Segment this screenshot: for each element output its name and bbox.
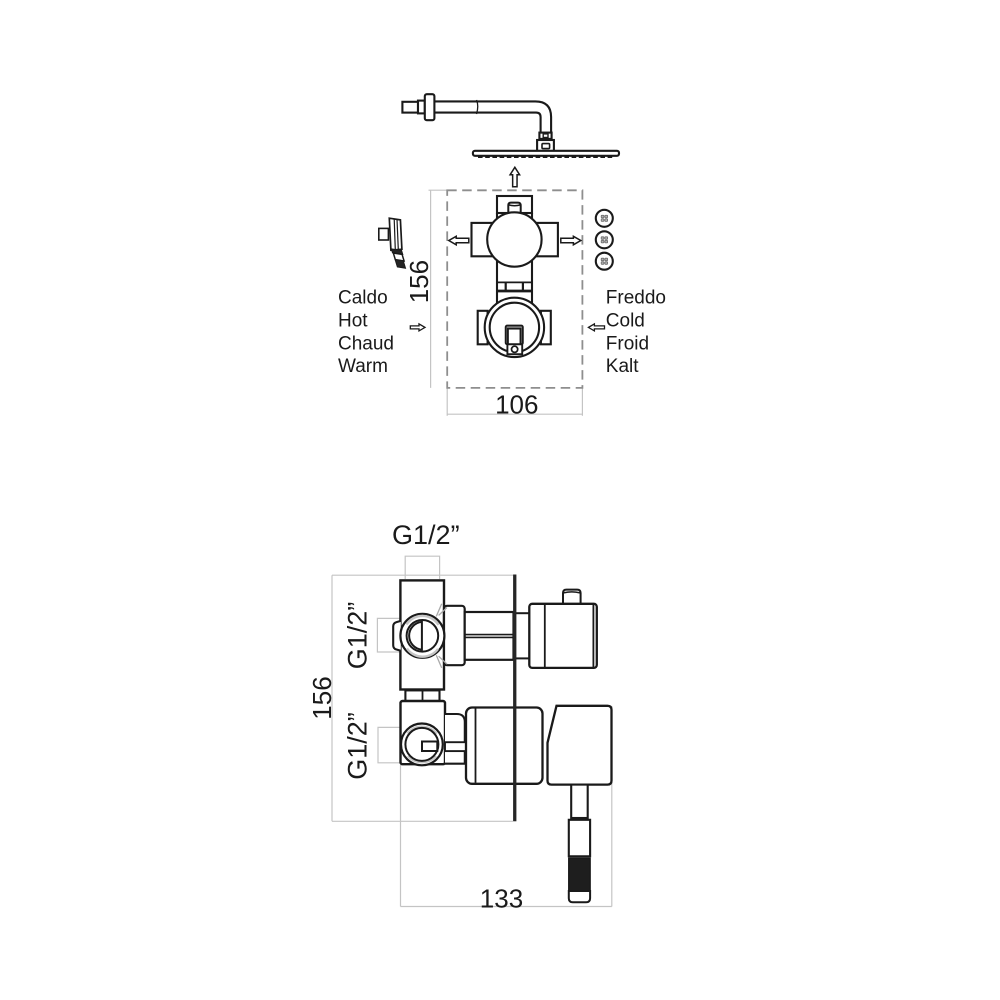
- svg-text:Kalt: Kalt: [606, 356, 639, 377]
- svg-text:156: 156: [404, 260, 434, 303]
- svg-text:Warm: Warm: [338, 356, 388, 377]
- svg-text:106: 106: [495, 389, 538, 419]
- svg-text:G1/2”: G1/2”: [343, 602, 373, 670]
- svg-text:Froid: Froid: [606, 333, 649, 354]
- svg-text:G1/2”: G1/2”: [343, 712, 373, 780]
- svg-text:G1/2”: G1/2”: [392, 520, 460, 550]
- svg-text:Cold: Cold: [606, 311, 645, 332]
- svg-text:156: 156: [307, 676, 337, 719]
- svg-text:Hot: Hot: [338, 311, 368, 332]
- svg-text:133: 133: [480, 884, 523, 914]
- svg-text:Freddo: Freddo: [606, 288, 666, 309]
- svg-text:Chaud: Chaud: [338, 333, 394, 354]
- svg-text:Caldo: Caldo: [338, 288, 388, 309]
